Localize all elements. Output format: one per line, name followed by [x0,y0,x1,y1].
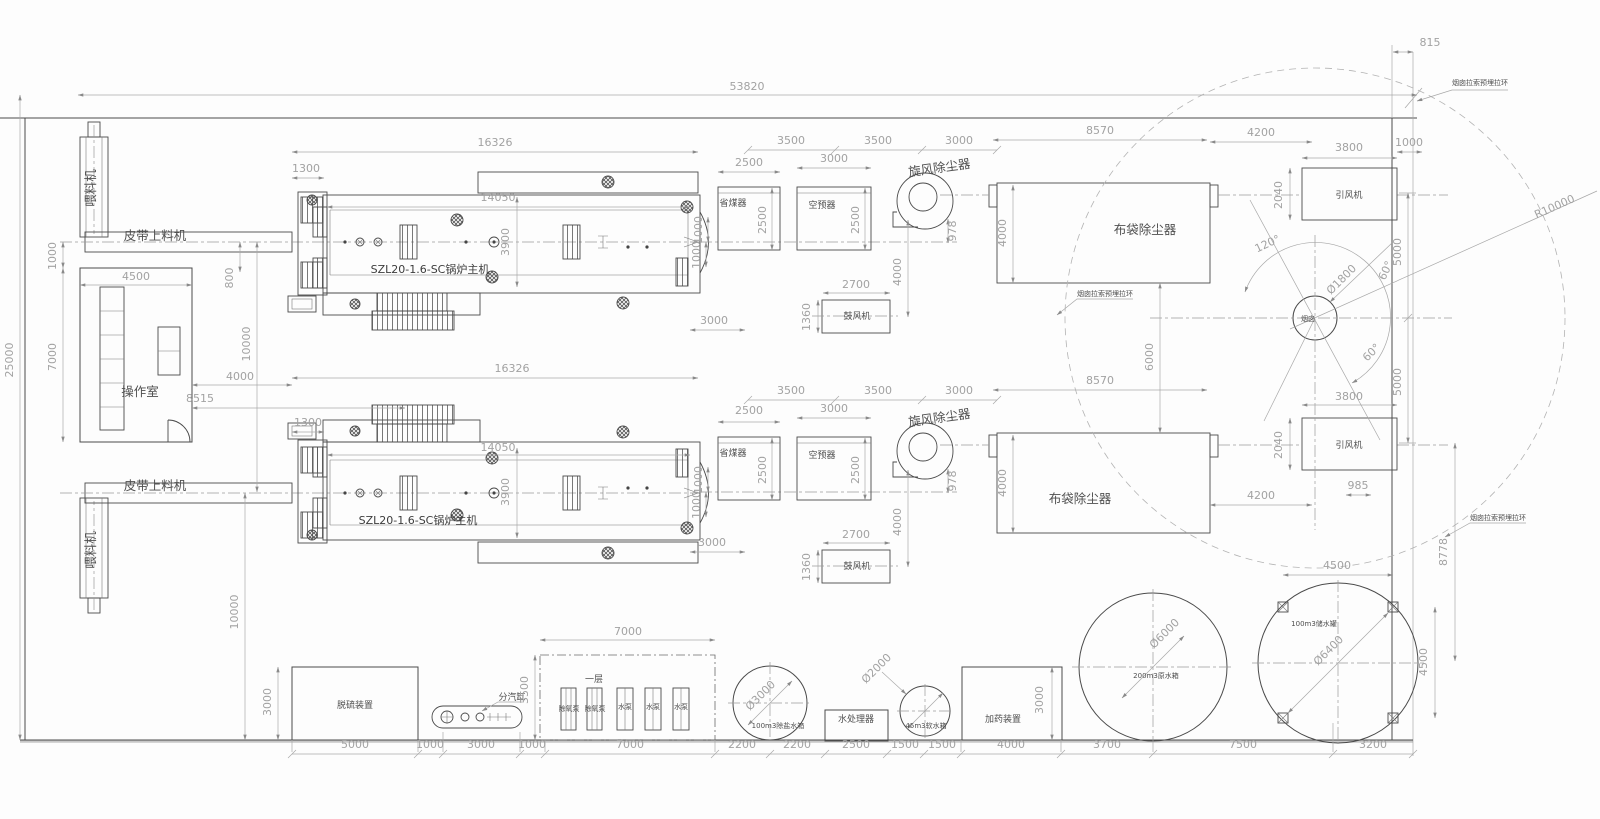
label-guy-ring-1: 烟囱拉索预埋拉环 [1452,78,1508,87]
label-baghouse-2: 布袋除尘器 [1049,491,1112,506]
dim-1360-2: 1360 [800,553,813,581]
dim-4000-bag1: 4000 [996,219,1009,247]
boiler-unit-2 [60,405,709,613]
label-first-floor: 一层 [585,674,603,685]
control-room [80,268,192,442]
label-hopper-feeder-2: 喂料机 [83,531,98,569]
cad-drawing: 53820815烟囱拉索预埋拉环R10000100038004200857030… [0,0,1600,819]
dim-2500v-econ2: 2500 [756,456,769,484]
dim-1500-b: 1500 [928,738,956,751]
dim-16326-2: 16326 [495,362,530,375]
dim-10000-lower: 10000 [228,595,241,630]
dim-3000-gap1: 3000 [700,314,728,327]
dim-4000-bag2: 4000 [996,469,1009,497]
dim-2040-2: 2040 [1272,431,1285,459]
dim-3900-1: 3900 [499,228,512,256]
dim-2200-a: 2200 [728,738,756,751]
label-desulfurizer: 脱硫装置 [337,699,373,711]
boiler-unit-1 [60,122,709,330]
dim-1000-room: 1000 [46,242,59,270]
label-air-preheater-2: 空预器 [808,449,835,461]
label-air-preheater-1: 空预器 [808,199,835,211]
dim-3000-chain1: 3000 [945,134,973,147]
dim-4000-bottom: 4000 [997,738,1025,751]
chimney-group [1065,68,1597,568]
dim-14050-2: 14050 [481,441,516,454]
label-boiler-2: SZL20-1.6-SC锅炉主机 [359,513,478,527]
label-economizer-1: 省煤器 [719,197,746,209]
label-guy-ring-3: 烟囱拉索预埋拉环 [1470,513,1526,522]
dim-2500-econ1: 2500 [735,156,763,169]
dim-4500-tank-h: 4500 [1323,559,1351,572]
dim-25000: 25000 [3,343,16,378]
label-raw-water-tank: 200m3原水箱 [1133,671,1179,680]
label-deaerator-pump-1: 除氧泵 [559,704,580,713]
label-cyclone-1: 旋风除尘器 [907,156,971,180]
anchor-bolt [1278,602,1288,612]
dim-d2000: Ø2000 [859,651,894,686]
dim-3800-idfan1: 3800 [1335,141,1363,154]
dim-7500-bottom: 7500 [1229,738,1257,751]
dim-3700-bottom: 3700 [1093,738,1121,751]
dim-5000-b: 5000 [1391,368,1404,396]
dim-5000-a: 5000 [1391,238,1404,266]
dim-3000-bottom: 3000 [467,738,495,751]
label-economizer-2: 省煤器 [719,447,746,459]
dim-8570-1: 8570 [1086,124,1114,137]
dim-1000-idfan1: 1000 [1395,136,1423,149]
label-id-fan-1: 引风机 [1335,189,1362,201]
dim-d3000: Ø3000 [743,678,778,713]
dim-8515: 8515 [186,392,214,405]
dim-2500-bottom: 2500 [842,738,870,751]
label-chimney: 烟囱 [1301,314,1315,323]
dim-7000-pumphouse: 7000 [614,625,642,638]
annotation-layer: 53820815烟囱拉索预埋拉环R10000100038004200857030… [3,36,1577,751]
dim-3000-aph2: 3000 [820,402,848,415]
label-cyclone-2: 旋风除尘器 [907,406,971,430]
dim-1000v-boiler1: 1000 [690,241,703,269]
dim-2500v-aph2: 2500 [849,456,862,484]
dim-2700-1: 2700 [842,278,870,291]
label-water-pump-2: 水泵 [646,702,660,711]
dim-3500-chain1a: 3500 [777,134,805,147]
dim-1360-1: 1360 [800,303,813,331]
label-control-room: 操作室 [121,384,159,399]
dim-1000v-boiler2: 1000 [690,491,703,519]
dim-815: 815 [1420,36,1441,49]
dim-4500-tank-v: 4500 [1417,648,1430,676]
label-id-fan-2: 引风机 [1335,439,1362,451]
dim-1500-a: 1500 [891,738,919,751]
dim-4200-1: 4200 [1247,126,1275,139]
label-hopper-feeder-1: 喂料机 [83,169,98,207]
label-water-pump-3: 水泵 [674,702,688,711]
dim-985: 985 [1348,479,1369,492]
dim-7000-room: 7000 [46,343,59,371]
dim-978-2: 978 [946,471,959,492]
label-belt-feeder-1: 皮带上料机 [124,228,187,243]
dim-d6000: Ø6000 [1147,616,1182,651]
dim-1000v-econ1: 1000 [692,216,705,244]
dim-1000-bottom-b: 1000 [518,738,546,751]
label-soft-water-tank: 45m3软水箱 [905,721,946,730]
dim-978-1: 978 [946,221,959,242]
dim-60deg-b: 60° [1360,341,1383,364]
dim-3500-chain1b: 3500 [864,134,892,147]
dim-10000-upper: 10000 [240,327,253,362]
dim-4000-room: 4000 [226,370,254,383]
dim-2700-2: 2700 [842,528,870,541]
anchor-bolt [1388,602,1398,612]
dim-1300-2: 1300 [294,416,322,429]
dim-3900-2: 3900 [499,478,512,506]
steam-header-unit [432,706,522,728]
dim-2500v-aph1: 2500 [849,206,862,234]
dim-1300-1: 1300 [292,162,320,175]
dim-3500-pumphouse: 3500 [518,676,531,704]
dim-14050-1: 14050 [481,191,516,204]
dim-3000-aph1: 3000 [820,152,848,165]
dim-8570-2: 8570 [1086,374,1114,387]
dim-4000-cyc2: 4000 [891,508,904,536]
dim-5000-bottom: 5000 [341,738,369,751]
dim-2200-b: 2200 [783,738,811,751]
label-deaerator-pump-2: 除氧泵 [585,704,606,713]
pump-house [540,655,715,740]
label-blower-1: 鼓风机 [843,310,870,322]
dim-16326-1: 16326 [478,136,513,149]
label-guy-ring-2: 烟囱拉索预埋拉环 [1077,289,1133,298]
label-water-treater: 水处理器 [838,713,874,725]
dim-r10000: R10000 [1532,192,1576,221]
dim-3200-bottom: 3200 [1359,738,1387,751]
dosing-unit-box [962,667,1062,740]
cad-canvas: 53820815烟囱拉索预埋拉环R10000100038004200857030… [0,0,1600,819]
dim-2500-econ2: 2500 [735,404,763,417]
label-storage-tank: 100m3储水罐 [1291,619,1337,628]
label-belt-feeder-2: 皮带上料机 [124,478,187,493]
dim-800: 800 [223,268,236,289]
dim-1000v-econ2: 1000 [692,466,705,494]
dim-3000-dosing: 3000 [1033,686,1046,714]
dim-3000-chain2: 3000 [945,384,973,397]
label-baghouse-1: 布袋除尘器 [1114,222,1177,237]
dim-7000-bottom: 7000 [616,738,644,751]
storage-tank-unit [1252,580,1424,744]
dim-2040-1: 2040 [1272,181,1285,209]
dim-4000-cyc1: 4000 [891,258,904,286]
label-blower-2: 鼓风机 [843,560,870,572]
dim-4200-2: 4200 [1247,489,1275,502]
dim-2500v-econ1: 2500 [756,206,769,234]
dim-8778: 8778 [1437,538,1450,566]
dim-3000-gap2: 3000 [698,536,726,549]
label-demi-water-tank: 100m3除盐水箱 [752,721,805,730]
dim-1000-bottom-a: 1000 [416,738,444,751]
dim-3000-desulf: 3000 [261,688,274,716]
label-boiler-1: SZL20-1.6-SC锅炉主机 [371,262,490,276]
dim-3800-idfan2: 3800 [1335,390,1363,403]
label-dosing-unit: 加药装置 [985,713,1021,725]
dim-3500-chain2b: 3500 [864,384,892,397]
dim-4500-room: 4500 [122,270,150,283]
dim-3500-chain2a: 3500 [777,384,805,397]
dim-site-width: 53820 [730,80,765,93]
label-water-pump-1: 水泵 [618,702,632,711]
dim-6000: 6000 [1143,343,1156,371]
raw-water-tank-unit [1072,589,1234,741]
